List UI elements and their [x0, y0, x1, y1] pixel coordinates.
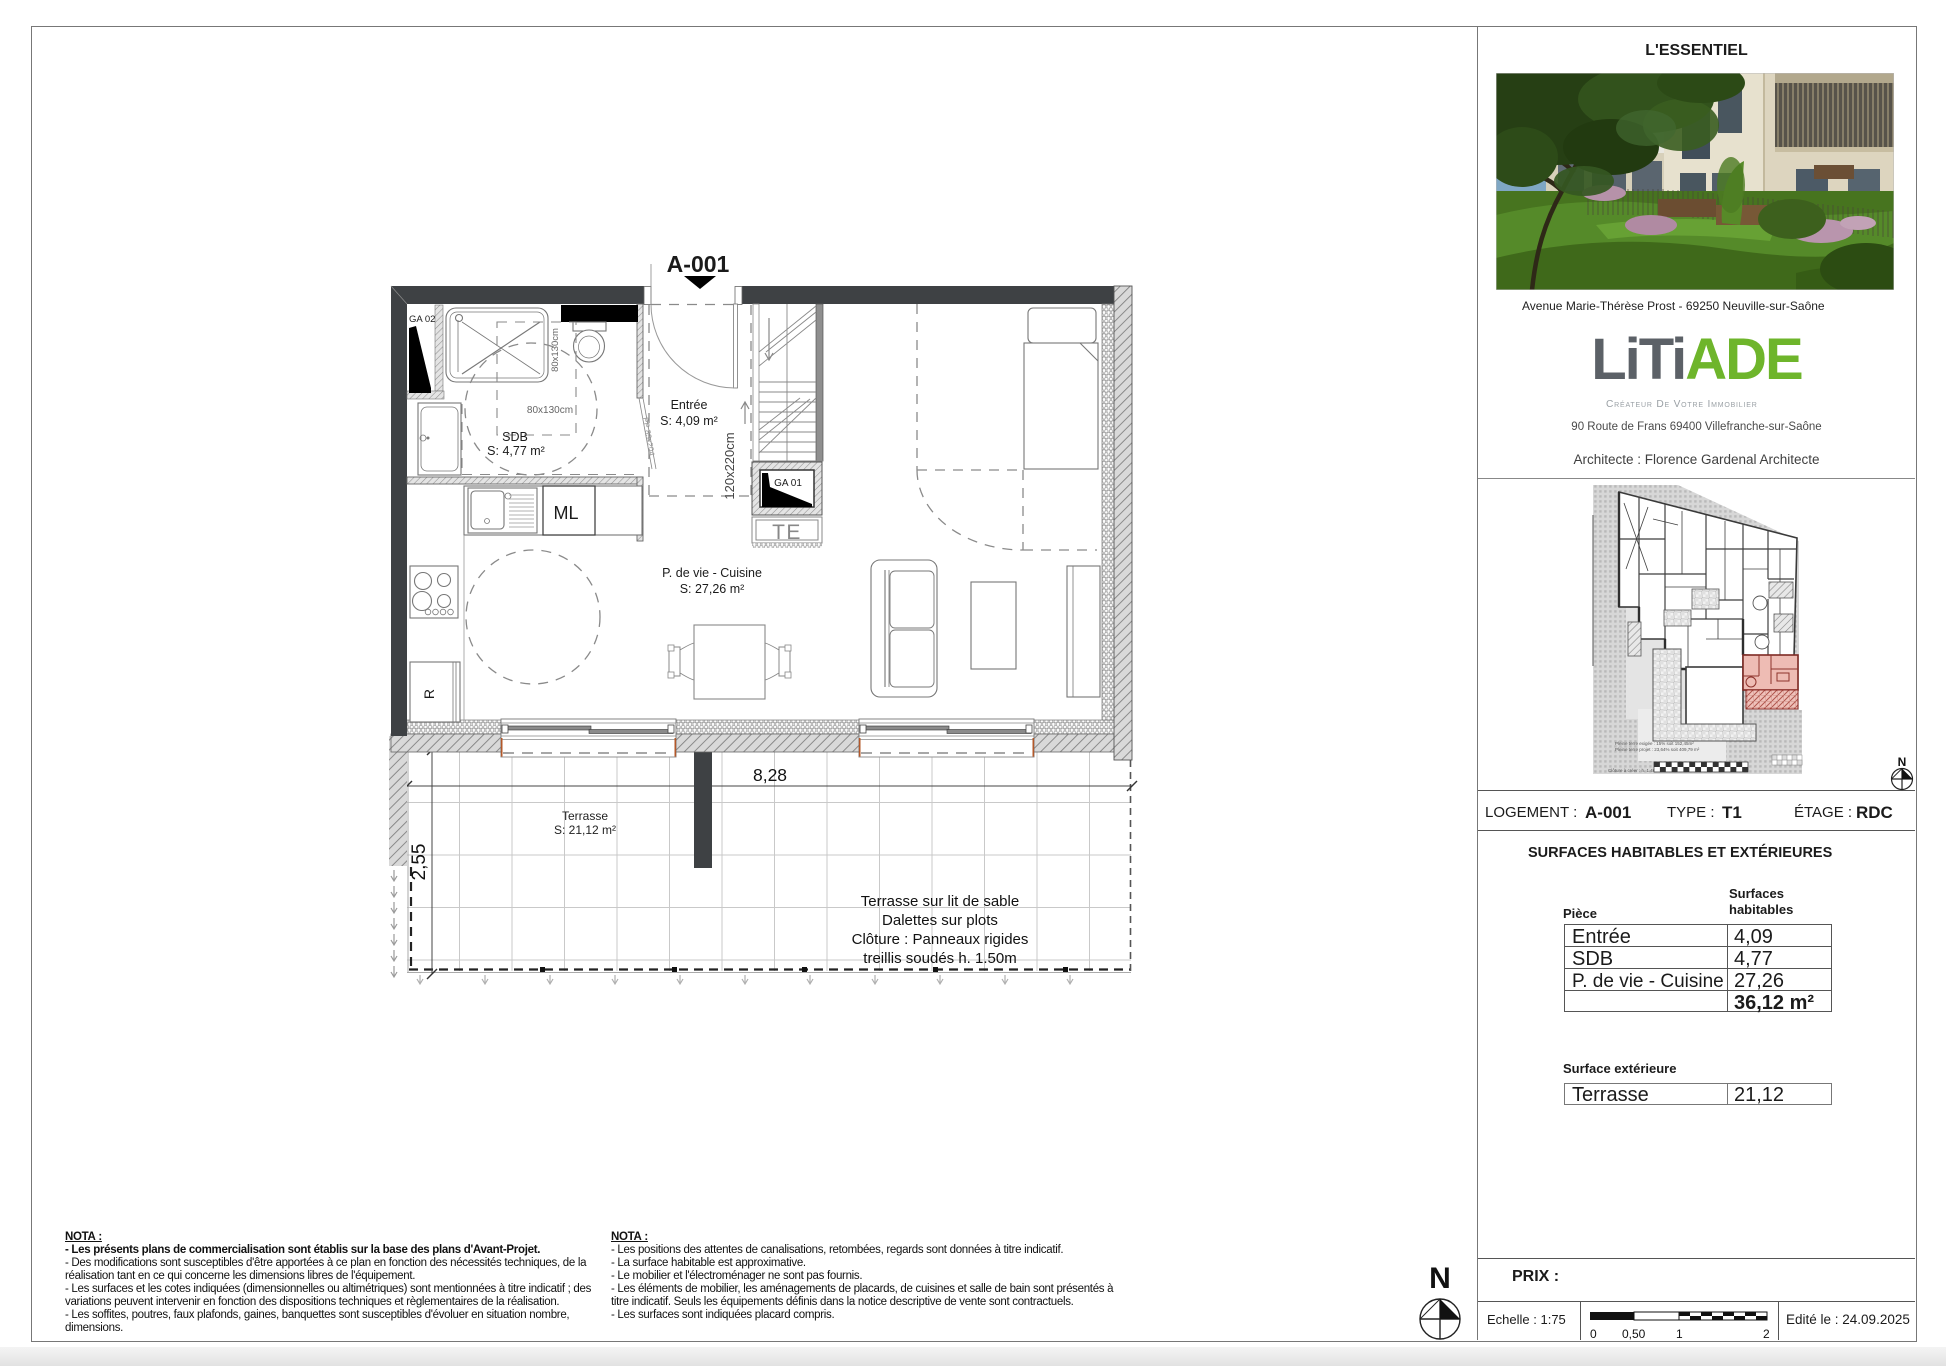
svg-text:treillis soudés h. 1.50m: treillis soudés h. 1.50m [863, 950, 1016, 967]
svg-text:N: N [1429, 1262, 1451, 1295]
svg-text:A-001: A-001 [667, 251, 730, 277]
svg-text:Pleine terre projet : 23,64% s: Pleine terre projet : 23,64% soit 409,79… [1615, 747, 1700, 752]
svg-text:R: R [421, 689, 437, 699]
svg-text:Dalettes sur plots: Dalettes sur plots [882, 912, 998, 929]
svg-text:80x130cm: 80x130cm [550, 328, 561, 372]
svg-text:N: N [1898, 755, 1907, 769]
svg-text:8,28: 8,28 [753, 765, 787, 785]
svg-text:SDB: SDB [502, 430, 528, 444]
svg-text:TE: TE [772, 521, 802, 544]
svg-text:PP 83x204: PP 83x204 [641, 417, 657, 458]
svg-text:S: 27,26 m²: S: 27,26 m² [680, 582, 745, 596]
svg-text:2,55: 2,55 [409, 844, 430, 881]
svg-text:1: 1 [1676, 1327, 1683, 1341]
svg-text:P. de vie - Cuisine: P. de vie - Cuisine [662, 566, 762, 580]
svg-text:Entrée: Entrée [671, 398, 708, 412]
svg-text:120x220cm: 120x220cm [722, 432, 737, 499]
svg-text:2: 2 [1763, 1327, 1770, 1341]
svg-text:Pleine terre exigée : 15% soit: Pleine terre exigée : 15% soit 152,45m² [1615, 741, 1694, 746]
svg-text:Clôture : Panneaux rigides: Clôture : Panneaux rigides [852, 931, 1029, 948]
svg-text:GA 01: GA 01 [774, 478, 802, 489]
svg-text:ML: ML [553, 503, 578, 523]
svg-text:Terrasse: Terrasse [562, 809, 608, 823]
svg-text:0: 0 [1590, 1327, 1597, 1341]
svg-text:Terrasse sur lit de sable: Terrasse sur lit de sable [861, 893, 1019, 910]
svg-text:S: 4,77 m²: S: 4,77 m² [487, 444, 545, 458]
svg-text:0,50: 0,50 [1622, 1327, 1646, 1341]
svg-text:S: 4,09 m²: S: 4,09 m² [660, 414, 718, 428]
svg-text:GA 02: GA 02 [409, 314, 435, 325]
svg-text:80x130cm: 80x130cm [527, 405, 573, 416]
svg-text:S: 21,12 m²: S: 21,12 m² [554, 823, 616, 837]
svg-text:Clôture à créer : h. 1.46m: Clôture à créer : h. 1.46m [1608, 768, 1659, 773]
